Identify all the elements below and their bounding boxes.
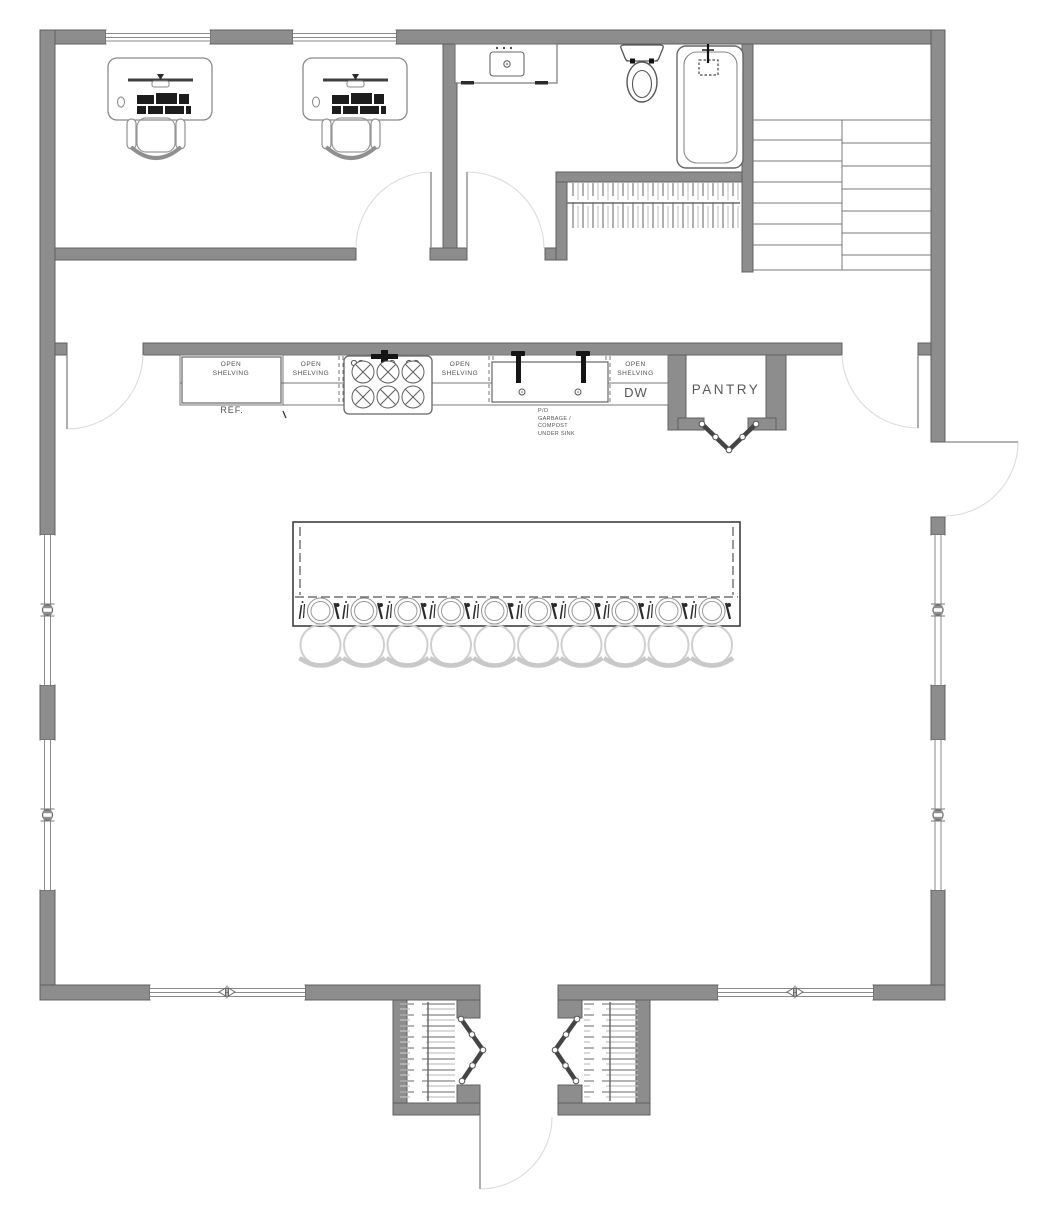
label-open-shelving-1: OPEN SHELVING: [180, 361, 282, 378]
bottom-window-1: [150, 986, 305, 1000]
right-window-1: [931, 535, 945, 685]
hall-closet: [567, 183, 740, 228]
label-dishwasher: DW: [608, 385, 664, 400]
top-window-2: [293, 31, 396, 44]
stair-treads-left: [753, 140, 842, 245]
label-open-shelving-2: OPEN SHELVING: [282, 361, 340, 378]
desk-2: [303, 58, 407, 158]
right-window-2: [931, 740, 945, 890]
label-open-shelving-4: OPEN SHELVING: [607, 361, 664, 378]
desk-1: [108, 58, 212, 158]
door-leaves: [67, 172, 1018, 1189]
label-open-shelving-3: OPEN SHELVING: [430, 361, 490, 378]
vanity-sink: [455, 44, 557, 85]
toilet: [621, 45, 663, 102]
office-workstations: [108, 58, 407, 158]
bathroom-fixtures: [455, 44, 743, 228]
top-window-1: [106, 31, 210, 44]
label-sink-note: P/O GARBAGE / COMPOST UNDER SINK: [538, 408, 608, 438]
exterior-walls: [40, 30, 945, 1000]
bar-stools: [300, 625, 734, 666]
doors: [67, 172, 1018, 1189]
floor-plan: OPEN SHELVING OPEN SHELVING OPEN SHELVIN…: [0, 0, 1060, 1230]
staircase: [753, 120, 931, 270]
kitchen-island: [293, 522, 740, 626]
door-swing-arcs: [67, 172, 1018, 1189]
left-window-1: [41, 535, 55, 685]
stair-treads-right: [842, 143, 931, 255]
left-window-2: [41, 740, 55, 890]
label-pantry: PANTRY: [666, 382, 786, 397]
bottom-window-2: [718, 986, 873, 1000]
entry-closets: [400, 1002, 638, 1101]
bathtub: [677, 44, 743, 168]
floor-plan-drawing: [0, 0, 1060, 1230]
range-cooktop: [344, 350, 432, 414]
label-refrigerator: REF.: [182, 405, 282, 415]
